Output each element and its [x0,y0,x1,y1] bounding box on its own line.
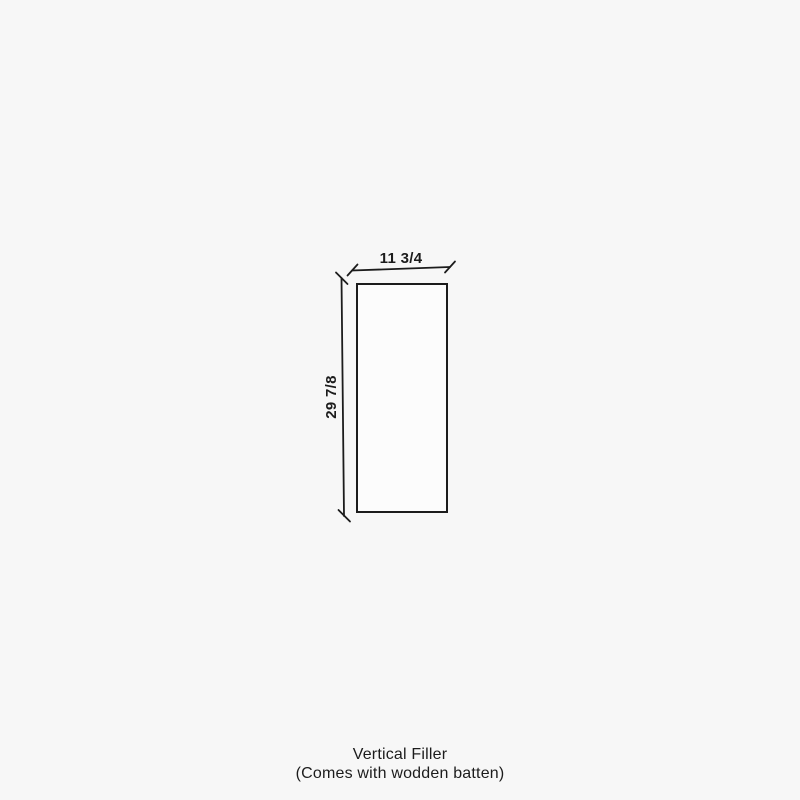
height-dimension-label: 29 7/8 [323,375,340,419]
filler-rectangle [357,284,447,512]
caption: Vertical Filler (Comes with wodden batte… [0,745,800,783]
width-dimension-label: 11 3/4 [380,250,423,267]
dimension-diagram: 11 3/4 29 7/8 [0,0,800,800]
diagram-page: 11 3/4 29 7/8 Vertical Filler (Comes wit… [0,0,800,800]
height-dimension-line [342,278,345,516]
caption-line2: (Comes with wodden batten) [0,764,800,783]
width-dimension-line [352,267,450,271]
caption-line1: Vertical Filler [0,745,800,764]
